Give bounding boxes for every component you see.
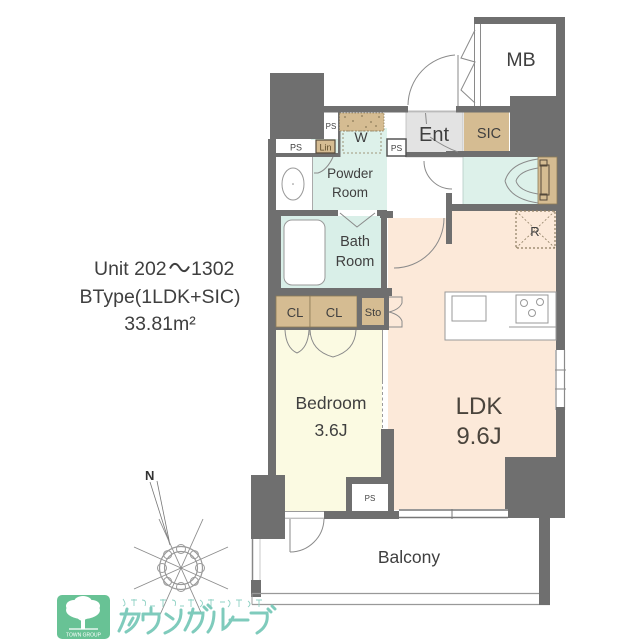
svg-text:PS: PS: [326, 122, 337, 131]
svg-text:SIC: SIC: [477, 126, 501, 142]
svg-text:PS: PS: [365, 494, 376, 503]
svg-text:Bedroom: Bedroom: [295, 393, 366, 413]
svg-text:LDK: LDK: [456, 393, 503, 420]
svg-text:Ent: Ent: [419, 124, 449, 146]
svg-text:Room: Room: [332, 185, 368, 200]
svg-text:W: W: [354, 129, 368, 145]
svg-text:Lin: Lin: [319, 143, 331, 153]
svg-text:9.6J: 9.6J: [456, 423, 501, 450]
svg-text:PS: PS: [391, 143, 403, 153]
svg-text:Powder: Powder: [327, 166, 373, 181]
svg-text:1302: 1302: [191, 258, 234, 280]
svg-text:BType(1LDK+SIC): BType(1LDK+SIC): [80, 286, 241, 308]
svg-text:PS: PS: [290, 143, 302, 153]
svg-text:Balcony: Balcony: [378, 547, 441, 567]
svg-text:N: N: [145, 468, 154, 483]
svg-text:MB: MB: [506, 49, 535, 71]
svg-text:Sto: Sto: [365, 307, 382, 319]
svg-text:Bath: Bath: [340, 234, 370, 250]
svg-text:Room: Room: [336, 254, 375, 270]
svg-text:CL: CL: [287, 305, 304, 320]
svg-text:Unit 202: Unit 202: [94, 258, 167, 280]
svg-text:R: R: [530, 224, 539, 239]
svg-text:CL: CL: [326, 305, 343, 320]
svg-text:TOWN GROUP: TOWN GROUP: [66, 633, 102, 639]
svg-text:3.6J: 3.6J: [314, 420, 347, 440]
svg-text:33.81m²: 33.81m²: [124, 313, 196, 335]
